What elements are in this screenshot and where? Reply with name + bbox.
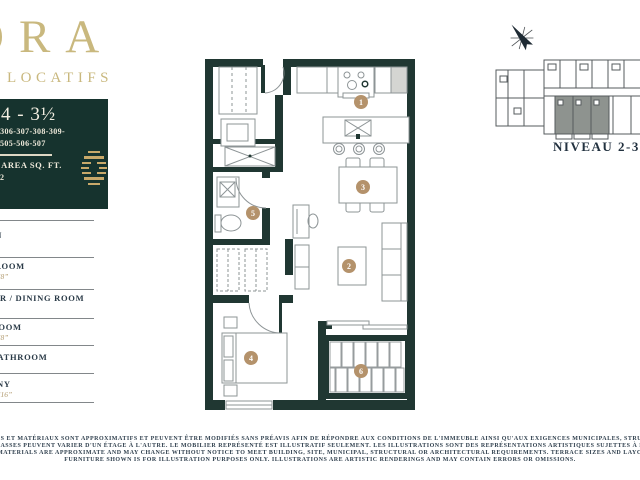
room-living: SALON / LIVING ROOM — [0, 261, 25, 271]
plan-marker-kitchen: 1 — [354, 95, 368, 109]
legend-divider — [0, 289, 94, 290]
brand-logo: ORA — [0, 10, 114, 64]
level-label: NIVEAU 2-3-4 — [553, 139, 640, 155]
plan-marker-dining: 3 — [356, 180, 370, 194]
room-kitchen: CUISINE / KITCHEN — [0, 230, 2, 240]
room-dining: SALLE À MANGER / DINING ROOM — [0, 293, 84, 303]
floor-plan: 1 2 3 4 5 6 — [205, 55, 420, 420]
disclaimer-line-1: S, CARACTÉRISTIQUES ET MATÉRIAUX SONT AP… — [0, 436, 640, 442]
legend-divider — [0, 373, 94, 374]
legend-divider — [0, 402, 94, 403]
north-arrow-icon — [501, 17, 539, 56]
card-divider — [0, 154, 52, 156]
brand-tagline: LOCATIFS — [7, 70, 113, 87]
building-footprint — [496, 60, 640, 139]
plan-marker-bathroom: 5 — [246, 206, 260, 220]
legend-divider — [0, 345, 94, 346]
room-bedroom: CHAMBRE / BEDROOM — [0, 322, 22, 332]
room-balcony: BALCON / BALCONY — [0, 379, 11, 389]
disclaimer-line-2: ISPOSITION DES TERRASSES PEUVENT VARIER … — [0, 443, 640, 449]
unit-area: 7 AREA SQ. FT. — [0, 160, 62, 170]
unit-numbers-line1: -306-307-308-309- — [0, 127, 65, 136]
unit-info-card: 4 - 3½ -306-307-308-309- 505-506-507 7 A… — [0, 99, 108, 209]
ora-emblem-icon — [81, 151, 107, 185]
unit-area-note: 2 — [0, 173, 4, 182]
legend-divider — [0, 220, 94, 221]
plan-marker-living: 2 — [342, 259, 356, 273]
plan-marker-bedroom: 4 — [244, 351, 258, 365]
floor-plan-drawing — [205, 55, 420, 420]
disclaimer-line-4: FURNITURE SHOWN IS FOR ILLUSTRATION PURP… — [64, 457, 576, 463]
room-bathroom: SALLE DE BAIN / BATHROOM — [0, 352, 47, 362]
legend-divider — [0, 318, 94, 319]
unit-title: 4 - 3½ — [1, 104, 56, 126]
unit-numbers-line2: 505-506-507 — [0, 139, 46, 148]
legend-divider — [0, 257, 94, 258]
room-balcony-dim: ’16” — [0, 390, 12, 399]
room-living-dim: ’8” — [0, 272, 8, 281]
disclaimer-line-3: ECIFICATIONS AND MATERIALS ARE APPROXIMA… — [0, 450, 640, 456]
plan-marker-balcony: 6 — [354, 364, 368, 378]
room-bedroom-dim: ’8” — [0, 333, 8, 342]
